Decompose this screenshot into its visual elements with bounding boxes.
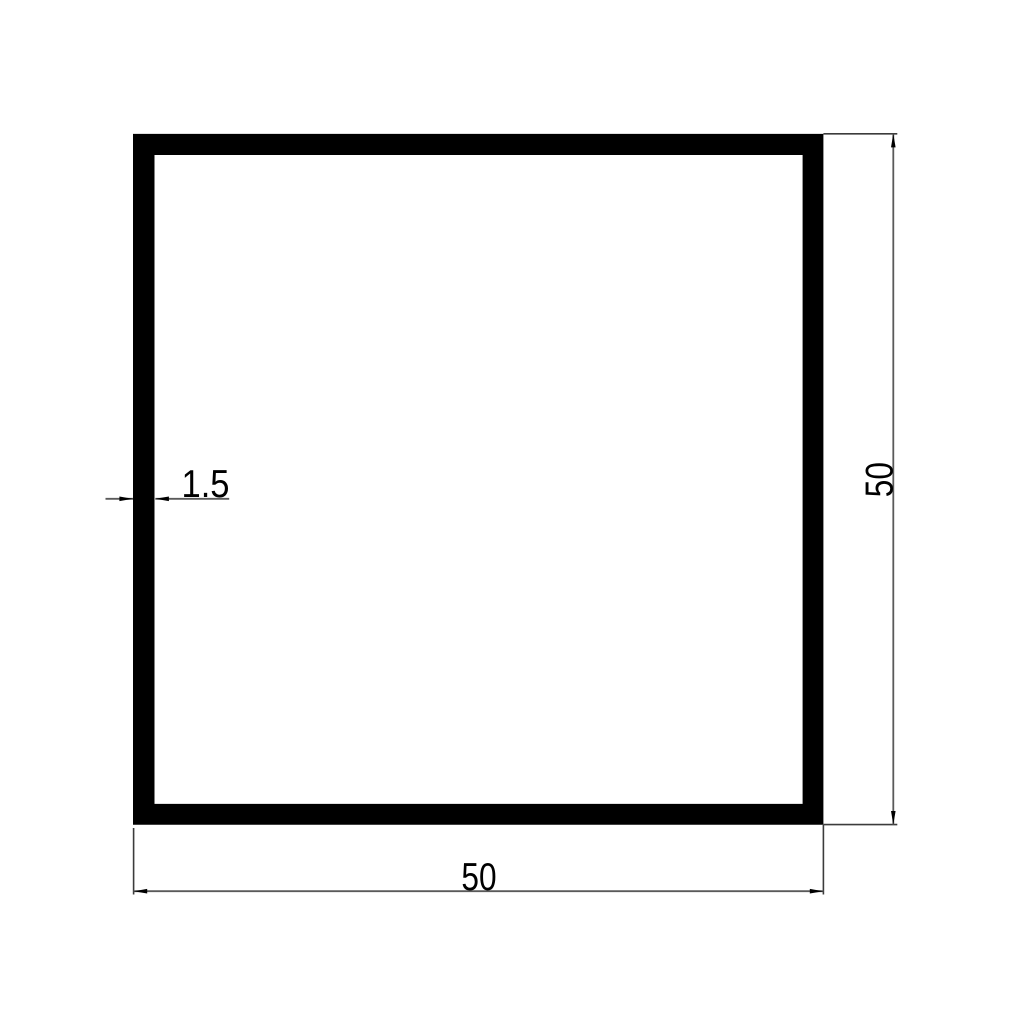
svg-text:50: 50 <box>461 856 496 899</box>
svg-text:50: 50 <box>858 462 901 497</box>
svg-text:1.5: 1.5 <box>182 463 230 506</box>
